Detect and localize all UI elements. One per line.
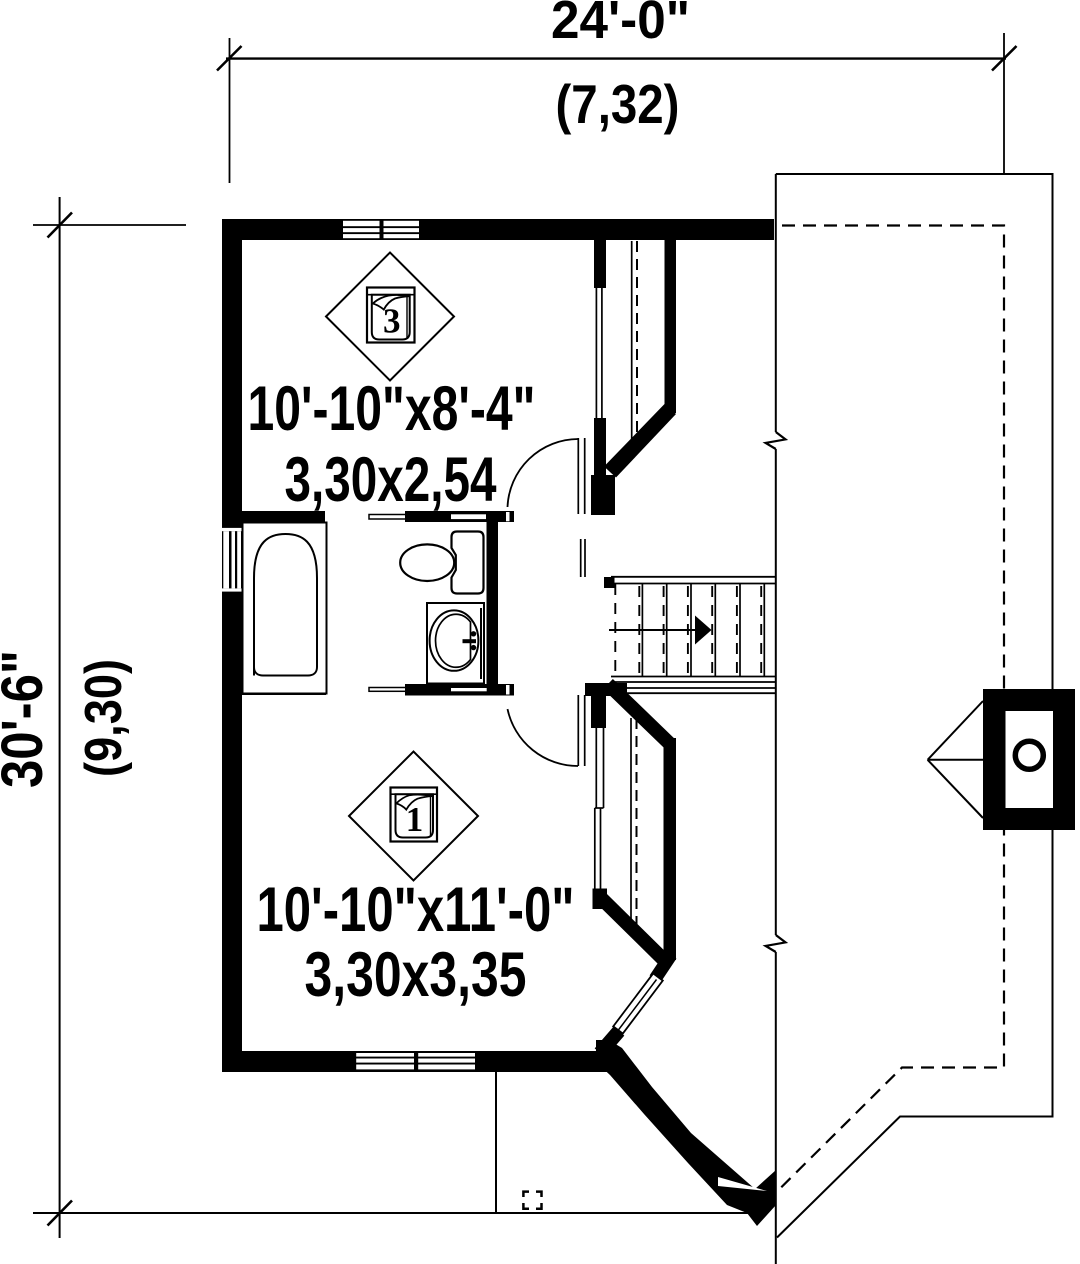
svg-text:10'-10"x11'-0": 10'-10"x11'-0" (257, 875, 575, 945)
svg-text:30'-6": 30'-6" (0, 650, 55, 788)
svg-text:3: 3 (383, 302, 401, 341)
svg-text:(7,32): (7,32) (556, 73, 680, 135)
svg-text:3,30x2,54: 3,30x2,54 (285, 445, 497, 515)
svg-text:1: 1 (406, 800, 424, 839)
svg-text:(9,30): (9,30) (75, 659, 133, 777)
svg-text:3,30x3,35: 3,30x3,35 (305, 940, 527, 1010)
svg-text:24'-0": 24'-0" (551, 0, 690, 50)
svg-text:10'-10"x8'-4": 10'-10"x8'-4" (248, 374, 536, 444)
